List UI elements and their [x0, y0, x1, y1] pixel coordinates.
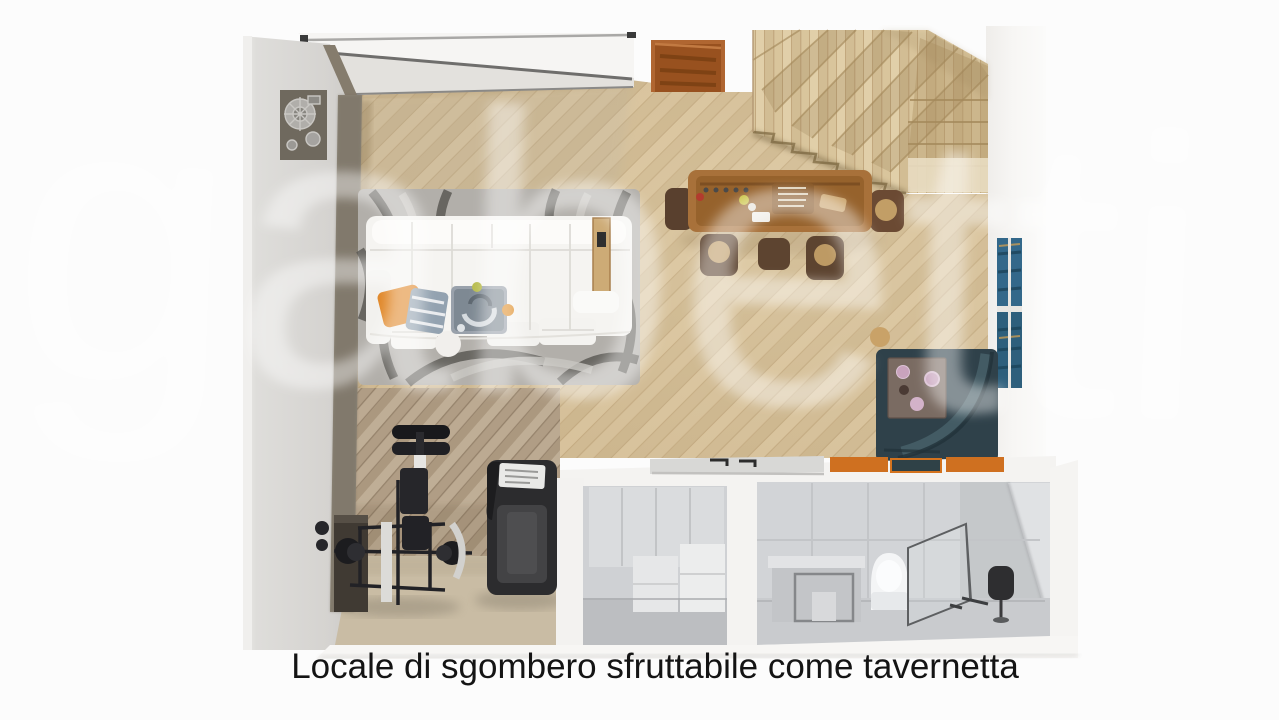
svg-text:Locale di sgombero sfruttabile: Locale di sgombero sfruttabile come tave… [291, 647, 1019, 686]
svg-text:gabetti: gabetti [6, 12, 1218, 507]
